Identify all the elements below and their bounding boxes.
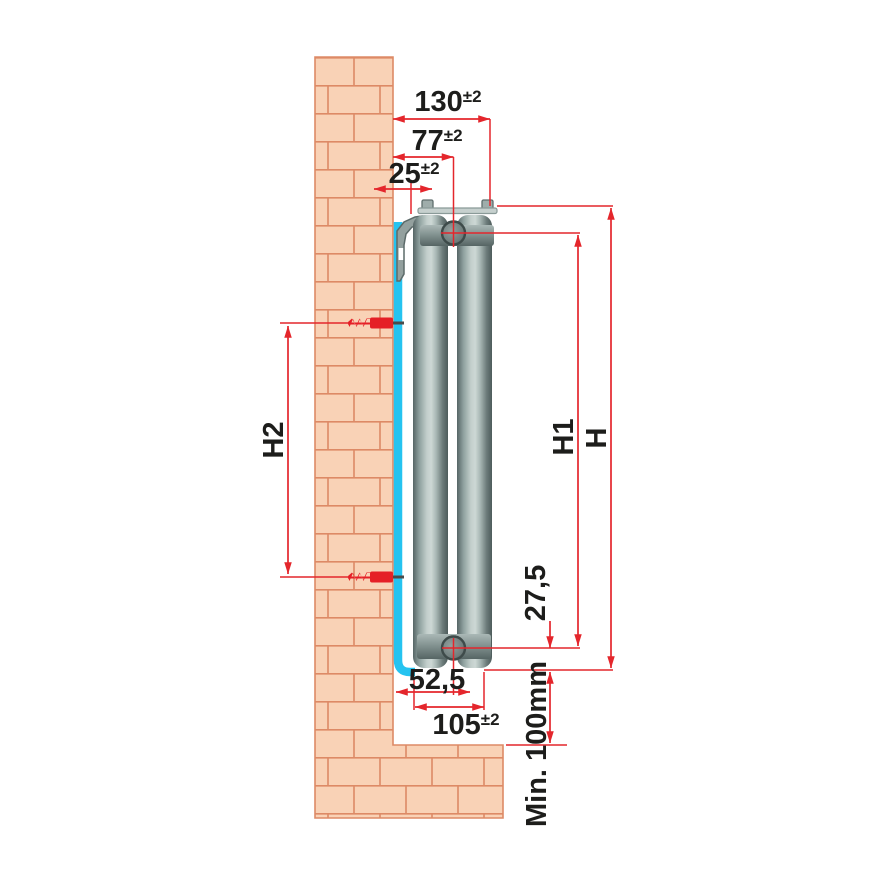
dimension-pipe-centers-height: H1 (548, 235, 580, 646)
radiator-top-grille (418, 208, 497, 214)
dimension-depth-bottom: 105±2 (415, 707, 500, 741)
dimension-label: Min. 100mm (521, 661, 553, 827)
mounting-rail (398, 222, 415, 672)
bracket-slot (399, 248, 404, 260)
dimension-total-height: H (581, 208, 613, 668)
dimension-label: 77±2 (411, 125, 462, 157)
dimension-label: 105±2 (432, 709, 499, 741)
anchor-plug (370, 572, 393, 583)
dimension-label: 27,5 (520, 565, 552, 621)
dimension-label: H2 (258, 421, 290, 458)
dimension-label: 52,5 (409, 664, 465, 696)
radiator (413, 200, 497, 668)
dimension-wall-to-pipe-center: 77±2 (393, 125, 463, 157)
radiator-back-panel (413, 215, 448, 668)
radiator-installation-diagram: 130±2 77±2 25±2 H2 H1 H 27,5 52,5 105±2 (0, 0, 880, 880)
dimension-label: H1 (548, 418, 580, 455)
dimension-depth-total: 130±2 (393, 86, 490, 119)
diagram-canvas: 130±2 77±2 25±2 H2 H1 H 27,5 52,5 105±2 (0, 0, 880, 880)
dimension-label: 25±2 (388, 158, 439, 190)
dimension-label: 130±2 (414, 86, 481, 118)
dimension-floor-clearance: Min. 100mm (521, 661, 553, 827)
anchor-plug (370, 318, 393, 329)
dimension-anchor-spacing: H2 (258, 326, 290, 574)
radiator-front-panel (457, 215, 492, 668)
dimension-pipe-to-bottom: 27,5 (520, 565, 552, 648)
dimension-label: H (581, 428, 613, 449)
